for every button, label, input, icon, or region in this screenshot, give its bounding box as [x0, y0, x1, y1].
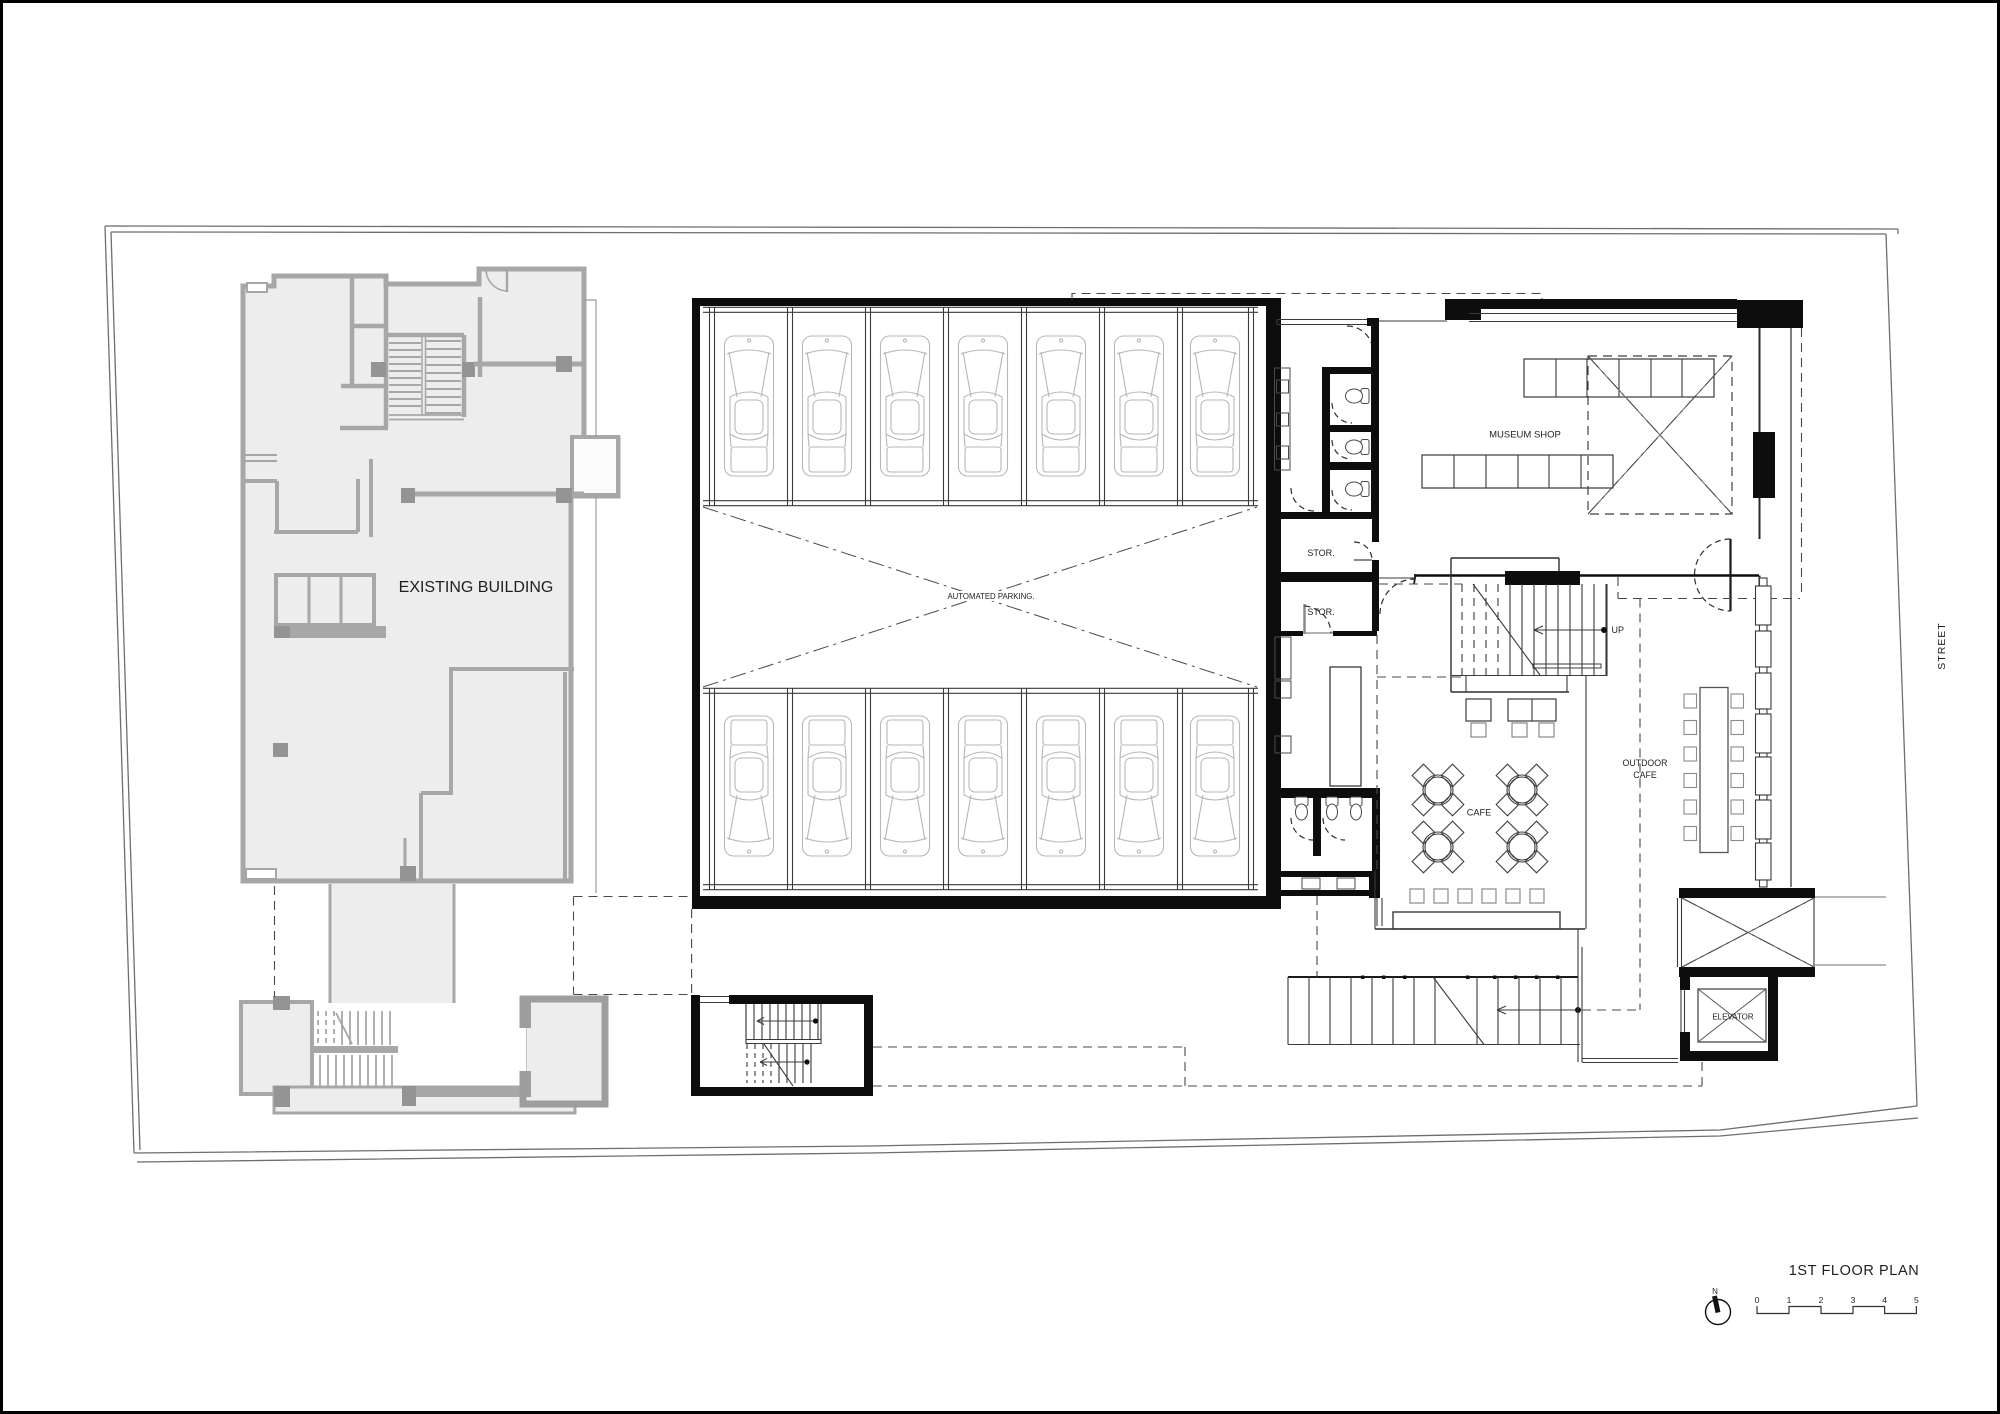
- svg-text:UP: UP: [1612, 625, 1625, 635]
- svg-text:MUSEUM SHOP: MUSEUM SHOP: [1489, 430, 1561, 441]
- svg-text:2: 2: [1819, 1295, 1824, 1305]
- svg-text:N: N: [1712, 1287, 1718, 1296]
- svg-text:CAFE: CAFE: [1467, 808, 1492, 818]
- svg-text:0: 0: [1755, 1295, 1760, 1305]
- svg-text:OUTDOOR: OUTDOOR: [1623, 758, 1668, 768]
- svg-text:1ST FLOOR PLAN: 1ST FLOOR PLAN: [1789, 1263, 1920, 1279]
- svg-text:1: 1: [1787, 1295, 1792, 1305]
- svg-text:3: 3: [1851, 1295, 1856, 1305]
- svg-text:4: 4: [1882, 1295, 1887, 1305]
- svg-text:STOR.: STOR.: [1307, 548, 1334, 558]
- svg-text:CAFE: CAFE: [1633, 770, 1657, 780]
- svg-text:5: 5: [1914, 1295, 1919, 1305]
- svg-text:STOR.: STOR.: [1307, 607, 1334, 617]
- svg-text:EXISTING BUILDING: EXISTING BUILDING: [399, 579, 554, 596]
- svg-text:AUTOMATED PARKING.: AUTOMATED PARKING.: [947, 592, 1034, 601]
- svg-text:ELEVATOR: ELEVATOR: [1712, 1013, 1754, 1022]
- svg-text:STREET: STREET: [1936, 622, 1948, 669]
